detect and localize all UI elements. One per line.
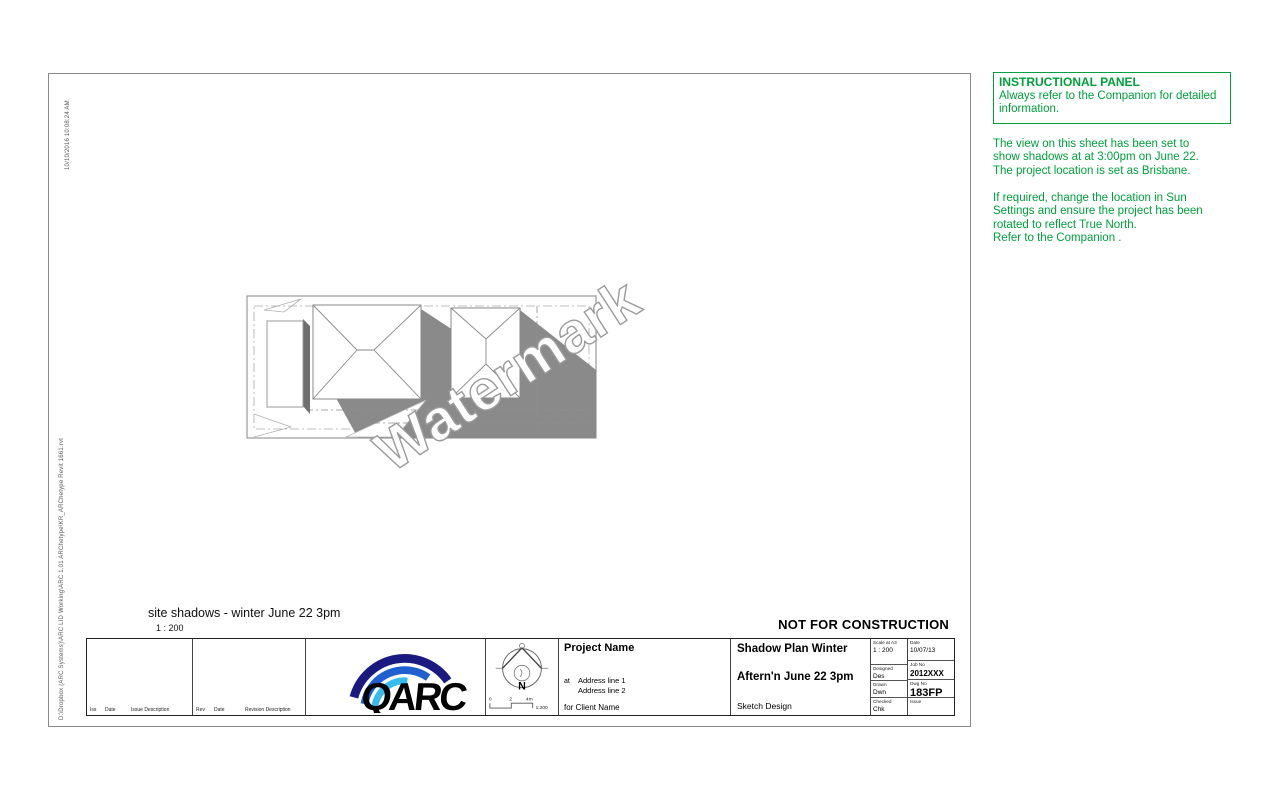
checked-label: Checked bbox=[873, 699, 892, 704]
north-letter: N bbox=[518, 681, 526, 693]
print-timestamp: 10/10/2016 10:08:24 AM bbox=[65, 100, 71, 170]
issue-label: Issue bbox=[910, 699, 921, 704]
scalebar-4m: 4m bbox=[526, 696, 533, 702]
job-no-label: Job No bbox=[910, 662, 925, 667]
sheet-title-line3: Sketch Design bbox=[737, 701, 792, 711]
title-block: Iss Date Issue Description Rev Date Revi… bbox=[86, 638, 955, 716]
instructional-paragraph-2: If required, change the location in Sun … bbox=[993, 192, 1231, 246]
scalebar-ratio: 1:200 bbox=[536, 705, 548, 711]
sheet-title-line1: Shadow Plan Winter bbox=[737, 643, 847, 655]
north-arrow-cell: N 0 2 4m 1:200 bbox=[485, 639, 558, 715]
rev-col-rev: Rev bbox=[196, 707, 205, 713]
instructional-panel-intro: Always refer to the Companion for detail… bbox=[999, 90, 1225, 117]
building1 bbox=[313, 305, 421, 399]
site-shadow-plan bbox=[246, 294, 601, 443]
instructional-panel: INSTRUCTIONAL PANEL Always refer to the … bbox=[993, 72, 1231, 246]
issue-col-desc: Issue Description bbox=[131, 707, 169, 713]
file-path: D:\Dropbox (ARC Systems)\ARC LID Working… bbox=[59, 438, 65, 720]
address-line-2: Address line 2 bbox=[578, 686, 626, 695]
checked-value: Chk bbox=[873, 706, 885, 713]
garage bbox=[267, 321, 303, 407]
dwg-no-label: Dwg No bbox=[910, 681, 927, 686]
project-at: at bbox=[564, 678, 570, 685]
view-title: site shadows - winter June 22 3pm bbox=[148, 606, 340, 620]
company-logo-cell: QARC bbox=[305, 639, 485, 715]
sheet-title-cell: Shadow Plan Winter Aftern'n June 22 3pm … bbox=[730, 639, 870, 715]
drawing-sheet: 10/10/2016 10:08:24 AM D:\Dropbox (ARC S… bbox=[48, 73, 971, 727]
date-label: Date bbox=[910, 640, 920, 645]
revision-table: Rev Date Revision Description bbox=[192, 639, 305, 715]
north-arrow: N 0 2 4m 1:200 bbox=[486, 639, 557, 713]
rev-col-desc: Revision Description bbox=[245, 707, 291, 713]
drawn-label: Drawn bbox=[873, 682, 887, 687]
instructional-panel-box: INSTRUCTIONAL PANEL Always refer to the … bbox=[993, 72, 1231, 124]
scalebar-0: 0 bbox=[489, 696, 492, 702]
sheet-title-line2: Aftern'n June 22 3pm bbox=[737, 671, 853, 683]
scale-at-a3-label: Scale at A3 bbox=[873, 640, 897, 645]
instructional-paragraph-1: The view on this sheet has been set to s… bbox=[993, 138, 1231, 179]
project-name: Project Name bbox=[564, 642, 634, 654]
instructional-panel-title: INSTRUCTIONAL PANEL bbox=[999, 76, 1225, 90]
scalebar-2: 2 bbox=[509, 696, 512, 702]
building2 bbox=[451, 308, 520, 398]
not-for-construction-stamp: NOT FOR CONSTRUCTION bbox=[778, 617, 949, 632]
address-line-1: Address line 1 bbox=[578, 676, 626, 685]
date-value: 10/07/13 bbox=[910, 647, 935, 654]
client-name: for Client Name bbox=[564, 703, 620, 712]
qarc-logo: QARC bbox=[306, 639, 484, 713]
issue-table: Iss Date Issue Description bbox=[87, 639, 192, 715]
project-cell: Project Name at Address line 1 Address l… bbox=[558, 639, 730, 715]
drawn-value: Dwn bbox=[873, 689, 886, 696]
job-no-value: 2012XXX bbox=[910, 669, 944, 678]
scale-bar bbox=[490, 703, 533, 708]
rev-col-date: Date bbox=[214, 707, 225, 713]
garage-shadow bbox=[303, 319, 310, 414]
meta-left-column: Scale at A3 1 : 200 Designed Des Drawn D… bbox=[870, 639, 907, 715]
issue-col-date: Date bbox=[105, 707, 116, 713]
designed-value: Des bbox=[873, 673, 885, 680]
designed-label: Designed bbox=[873, 666, 893, 671]
view-scale: 1 : 200 bbox=[156, 623, 184, 633]
issue-col-iss: Iss bbox=[90, 707, 96, 713]
scale-at-a3-value: 1 : 200 bbox=[873, 647, 893, 654]
building2-shadow bbox=[520, 310, 596, 438]
logo-wordmark: QARC bbox=[359, 676, 469, 713]
meta-right-column: Date 10/07/13 Job No 2012XXX Dwg No 183F… bbox=[907, 639, 954, 715]
